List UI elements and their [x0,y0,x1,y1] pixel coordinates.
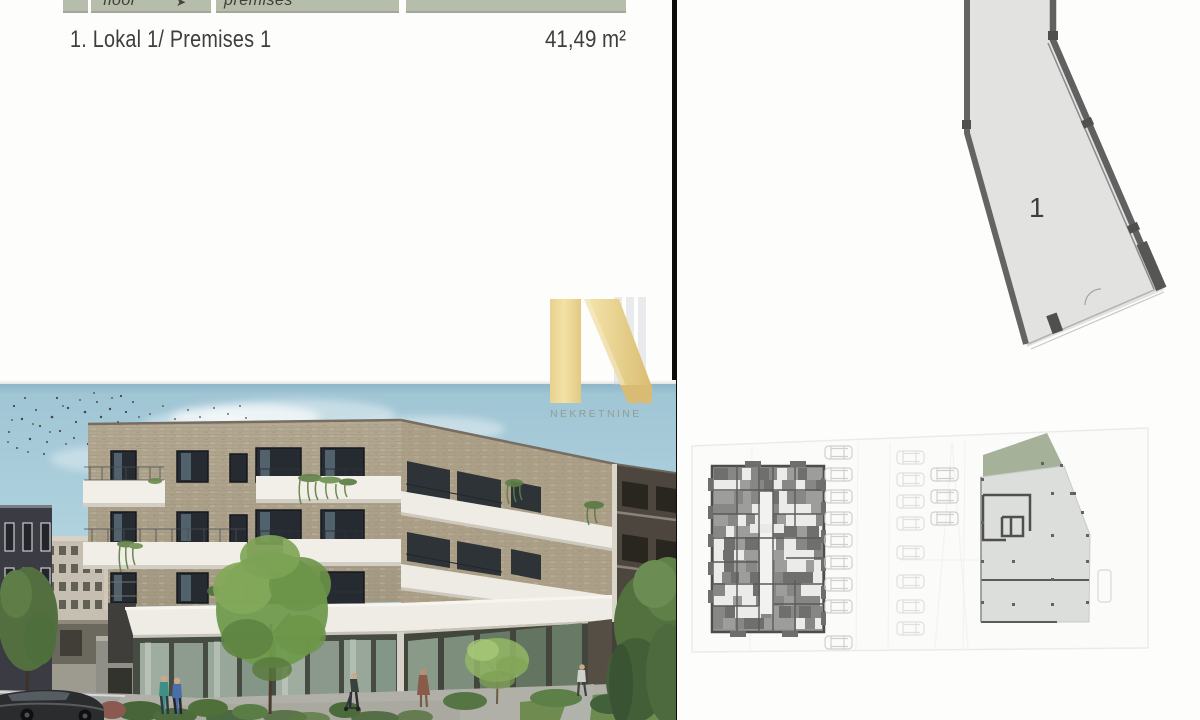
svg-text:NEKRETNINE: NEKRETNINE [550,408,642,420]
svg-text:1: 1 [1029,192,1045,223]
